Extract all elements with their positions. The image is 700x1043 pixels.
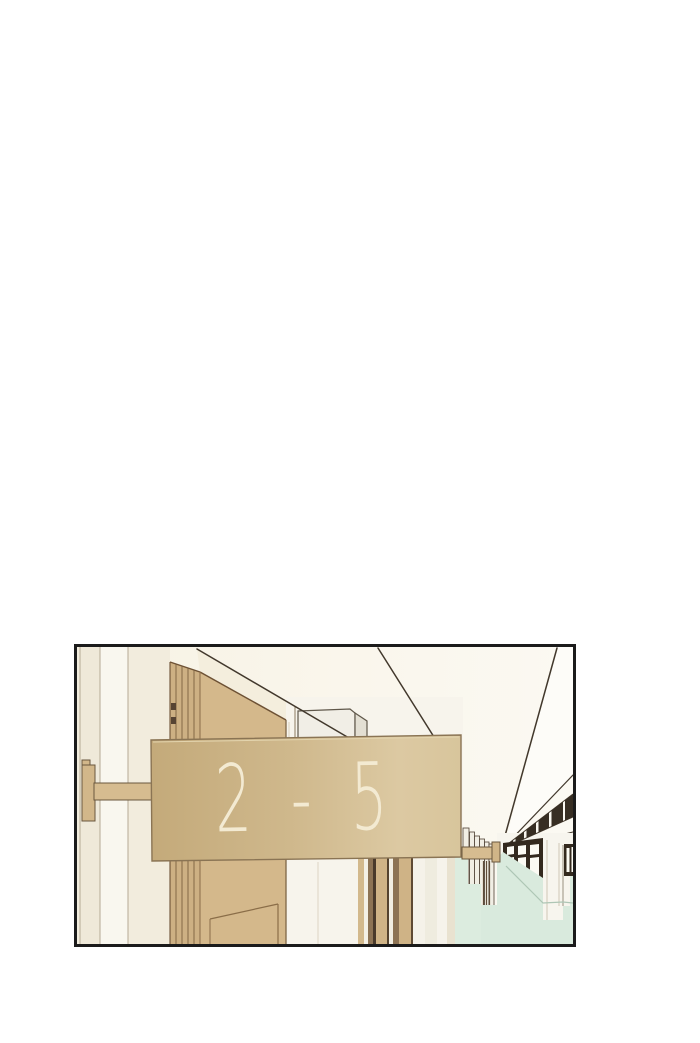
hallway-window-far: [564, 844, 573, 876]
comic-panel: 2 - 5: [74, 644, 576, 947]
door-hinge: [171, 703, 176, 710]
lower-wall-strips: [358, 857, 468, 944]
class-sign: [151, 735, 461, 861]
page-background: 2 - 5: [0, 0, 700, 1043]
hallway-scene: [77, 647, 573, 944]
door-hinge: [171, 717, 176, 724]
